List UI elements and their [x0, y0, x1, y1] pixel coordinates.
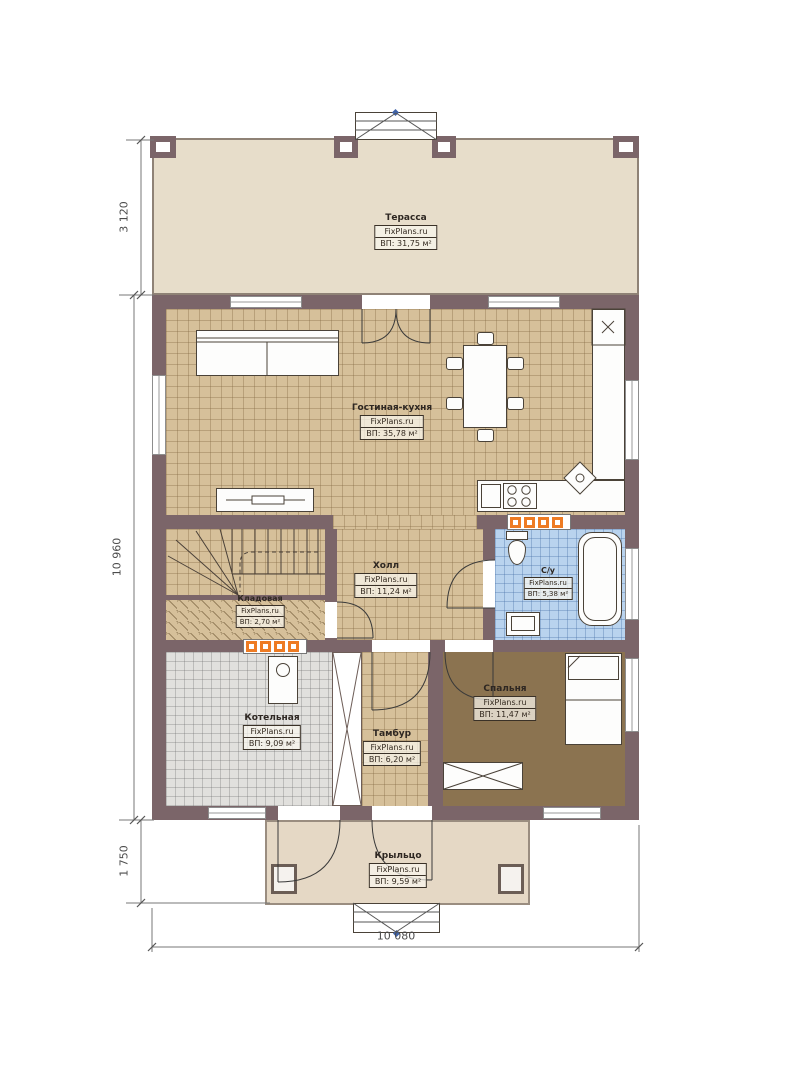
room-info-box: FixPlans.ru ВП: 35,78 м² [360, 415, 423, 440]
door-gap-tambour [372, 640, 430, 652]
watermark-text: FixPlans.ru [237, 606, 284, 617]
chimney-shaft [332, 652, 362, 806]
watermark-text: FixPlans.ru [370, 864, 426, 876]
chair [507, 357, 524, 370]
window-terrace-right [488, 296, 560, 308]
dimension-bottom: 10 080 [377, 930, 416, 943]
room-label-storage: Кладовая FixPlans.ru ВП: 2,70 м² [236, 594, 285, 628]
chair [446, 357, 463, 370]
window-boiler [208, 807, 266, 819]
room-area: ВП: 31,75 м² [375, 238, 436, 249]
room-info-box: FixPlans.ru ВП: 6,20 м² [363, 741, 421, 766]
window-bedroom-bottom [543, 807, 601, 819]
radiator-icon [552, 517, 563, 528]
door-gap-entrance [372, 806, 432, 820]
kitchen-sink-small [481, 484, 501, 508]
room-label-terrace: Терасса FixPlans.ru ВП: 31,75 м² [374, 213, 437, 250]
window-terrace-left [230, 296, 302, 308]
sofa [196, 330, 339, 376]
watermark-text: FixPlans.ru [525, 578, 572, 589]
passage-living-hall [333, 515, 477, 529]
room-name: Крыльцо [369, 851, 427, 861]
room-info-box: FixPlans.ru ВП: 31,75 м² [374, 225, 437, 250]
kitchen-counter-vertical [592, 309, 625, 480]
room-label-hall: Холл FixPlans.ru ВП: 11,24 м² [354, 561, 417, 598]
porch-post [498, 864, 524, 894]
room-info-box: FixPlans.ru ВП: 11,47 м² [473, 696, 536, 721]
watermark-text: FixPlans.ru [364, 742, 420, 754]
tv-stand [216, 488, 314, 512]
door-gap-terrace [362, 295, 430, 309]
room-area: ВП: 11,47 м² [474, 709, 535, 720]
chair [446, 397, 463, 410]
wall-tambour-bedroom [428, 652, 443, 806]
room-name: Холл [354, 561, 417, 571]
room-area: ВП: 9,09 м² [244, 738, 300, 749]
boiler-circle [276, 663, 290, 677]
porch-steps [353, 903, 440, 933]
room-label-tambour: Тамбур FixPlans.ru ВП: 6,20 м² [363, 729, 421, 766]
terrace-steps [355, 112, 437, 140]
stove [503, 483, 537, 509]
room-area: ВП: 35,78 м² [361, 428, 422, 439]
dining-table [463, 345, 507, 428]
room-info-box: FixPlans.ru ВП: 11,24 м² [354, 573, 417, 598]
chair [477, 332, 494, 345]
radiator-icon [274, 641, 285, 652]
wall-living-hall [166, 515, 333, 529]
room-area: ВП: 9,59 м² [370, 876, 426, 887]
room-label-boiler: Котельная FixPlans.ru ВП: 9,09 м² [243, 713, 301, 750]
terrace-post [613, 136, 639, 158]
radiator-icon [260, 641, 271, 652]
room-name: С/у [524, 566, 573, 575]
room-name: Спальня [473, 684, 536, 694]
door-gap-porch-left [278, 806, 340, 820]
radiator-icon [524, 517, 535, 528]
watermark-text: FixPlans.ru [361, 416, 422, 428]
room-name: Котельная [243, 713, 301, 723]
room-area: ВП: 6,20 м² [364, 754, 420, 765]
bed-pillow [568, 656, 619, 680]
watermark-text: FixPlans.ru [474, 697, 535, 709]
room-name: Тамбур [363, 729, 421, 739]
room-label-bedroom: Спальня FixPlans.ru ВП: 11,47 м² [473, 684, 536, 721]
door-gap-bathroom [483, 560, 495, 608]
terrace-post [150, 136, 176, 158]
room-info-box: FixPlans.ru ВП: 2,70 м² [236, 605, 285, 628]
wall-left [152, 295, 166, 820]
room-info-box: FixPlans.ru ВП: 9,09 м² [243, 725, 301, 750]
window-living-left [152, 375, 166, 455]
window-bathroom [625, 548, 639, 620]
bathtub-inner [583, 537, 617, 621]
radiator-icon [288, 641, 299, 652]
room-area: ВП: 5,38 м² [525, 589, 572, 599]
radiator-icon [246, 641, 257, 652]
watermark-text: FixPlans.ru [244, 726, 300, 738]
room-name: Гостиная-кухня [352, 403, 432, 413]
radiator-icon [510, 517, 521, 528]
bathroom-sink-inner [511, 616, 535, 631]
room-name: Кладовая [236, 594, 285, 603]
chair [507, 397, 524, 410]
window-bedroom-right [625, 658, 639, 732]
porch-post [271, 864, 297, 894]
toilet-tank [506, 531, 528, 540]
dimension-left-middle: 10 960 [111, 538, 124, 577]
chair [477, 429, 494, 442]
watermark-text: FixPlans.ru [375, 226, 436, 238]
room-info-box: FixPlans.ru ВП: 5,38 м² [524, 577, 573, 600]
room-label-wc: С/у FixPlans.ru ВП: 5,38 м² [524, 566, 573, 600]
door-gap-storage [325, 602, 337, 638]
watermark-text: FixPlans.ru [355, 574, 416, 586]
dimension-left-bottom: 1 750 [118, 845, 131, 877]
window-living-right [625, 380, 639, 460]
radiator-icon [538, 517, 549, 528]
room-label-living: Гостиная-кухня FixPlans.ru ВП: 35,78 м² [352, 403, 432, 440]
door-gap-bedroom [445, 640, 493, 652]
room-area: ВП: 11,24 м² [355, 586, 416, 597]
floor-plan: Терасса FixPlans.ru ВП: 31,75 м² Гостина… [0, 0, 792, 1080]
room-area: ВП: 2,70 м² [237, 617, 284, 627]
room-name: Терасса [374, 213, 437, 223]
dimension-left-top: 3 120 [118, 201, 131, 233]
wardrobe [443, 762, 523, 790]
room-label-porch: Крыльцо FixPlans.ru ВП: 9,59 м² [369, 851, 427, 888]
room-info-box: FixPlans.ru ВП: 9,59 м² [369, 863, 427, 888]
